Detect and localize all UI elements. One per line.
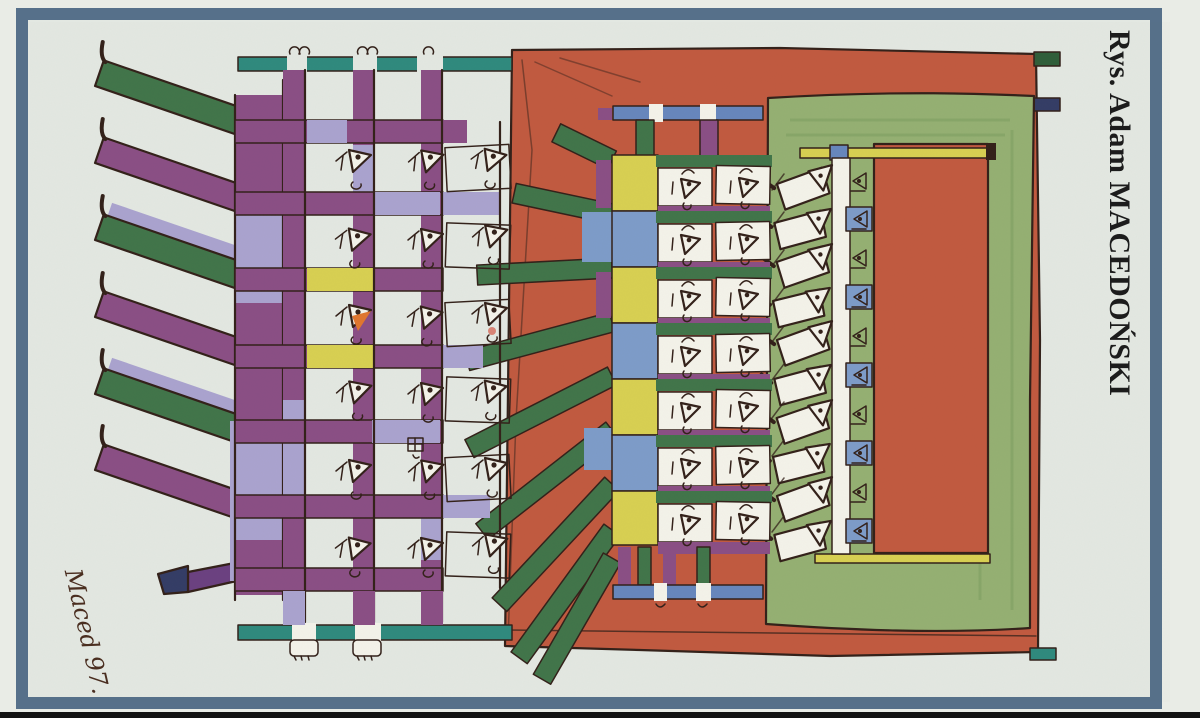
left-classroom-panel	[88, 42, 512, 660]
corner-tab	[1034, 98, 1060, 111]
yellow-blue-column	[612, 155, 658, 545]
corner-tab	[1030, 648, 1056, 660]
scan-edge	[0, 712, 1200, 718]
artist-credit: Rys. Adam MACEDOŃSKI	[1102, 30, 1136, 396]
pink-dot	[488, 327, 496, 335]
bottom-rod	[815, 554, 990, 563]
spine	[230, 80, 288, 600]
inner-red-board	[874, 144, 988, 553]
corner-tab	[1034, 52, 1060, 66]
top-rod	[800, 148, 990, 158]
scanned-artwork-page: Rys. Adam MACEDOŃSKI Maced 97.	[0, 0, 1200, 718]
right-green-room	[759, 52, 1060, 660]
drawing	[0, 0, 1200, 718]
